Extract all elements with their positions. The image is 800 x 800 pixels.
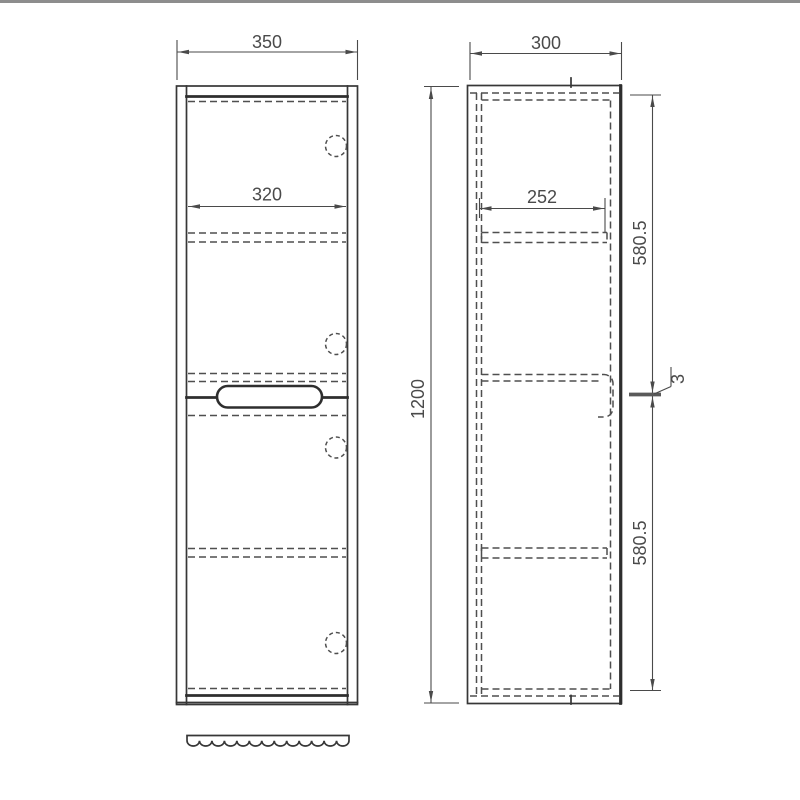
dim-side-depth-label: 300 xyxy=(531,33,561,53)
dim-front-width-label: 350 xyxy=(252,32,282,52)
drawing-canvas: 350 320 xyxy=(0,0,800,800)
dim-side-depth: 300 xyxy=(470,33,622,80)
dim-upper-section-label: 580.5 xyxy=(630,220,650,265)
broken-section-strip xyxy=(187,736,349,746)
cabinet-technical-drawing: 350 320 xyxy=(0,0,800,800)
side-view: 300 252 1200 580.5 580.5 3 xyxy=(408,33,688,704)
dim-front-width: 350 xyxy=(177,32,358,80)
dim-height: 1200 xyxy=(408,87,459,704)
dim-gap-label: 3 xyxy=(668,374,688,384)
front-view: 350 320 xyxy=(177,32,358,746)
dim-sections: 580.5 580.5 3 xyxy=(629,95,688,691)
dim-height-label: 1200 xyxy=(408,379,428,419)
dim-inner-depth-label: 252 xyxy=(527,187,557,207)
dim-door-width-label: 320 xyxy=(252,185,282,205)
dim-lower-section-label: 580.5 xyxy=(630,520,650,565)
handle-recess xyxy=(217,386,322,408)
side-outer-body xyxy=(468,86,622,704)
